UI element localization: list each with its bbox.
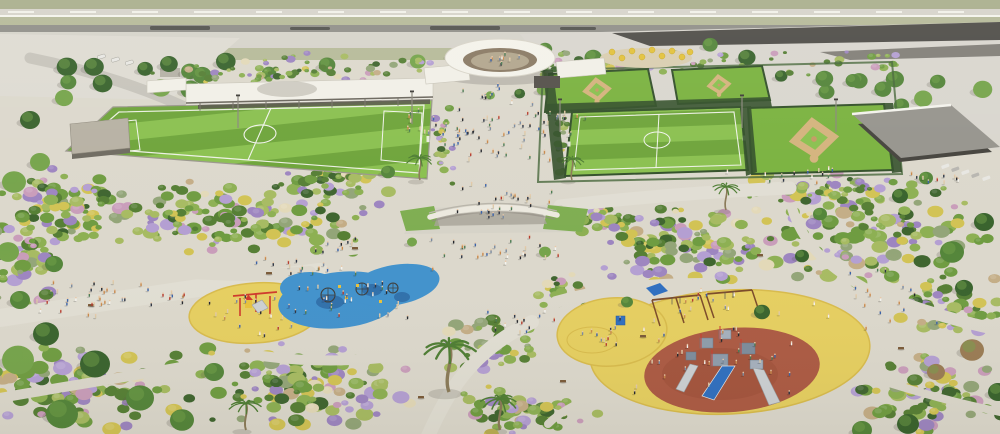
screenshot-root	[0, 0, 1000, 434]
park-aerial-rendering	[0, 0, 1000, 434]
photo-overlay	[0, 0, 1000, 434]
